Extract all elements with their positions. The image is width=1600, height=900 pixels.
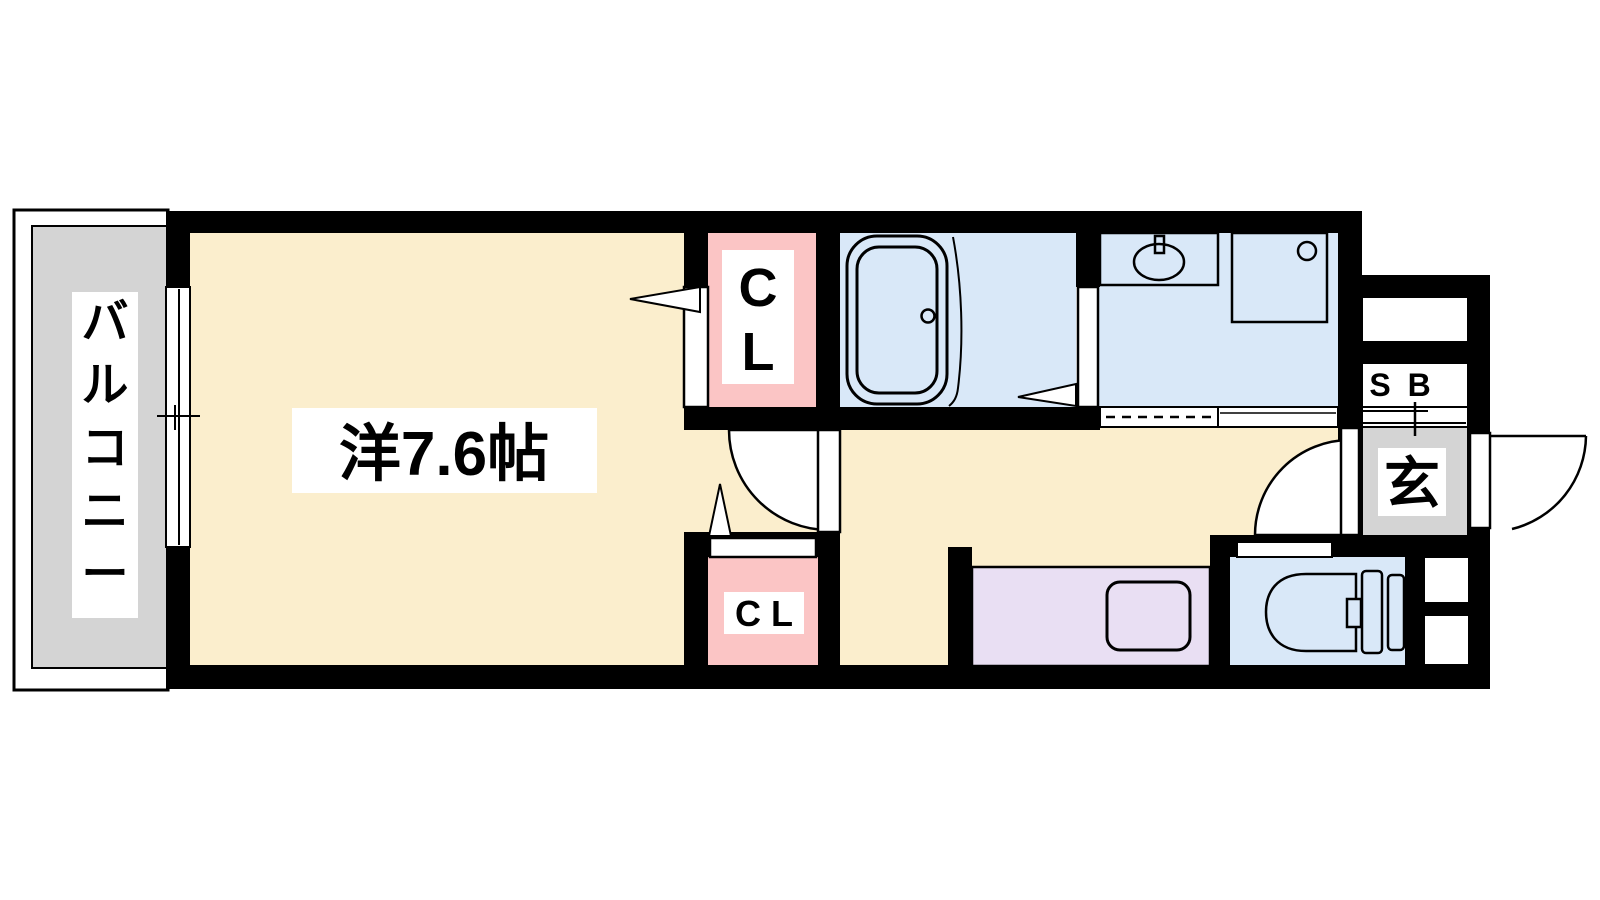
wall-bath-washroom-divider (1076, 233, 1100, 287)
wall-top (166, 211, 1362, 233)
room-door-leaf (818, 430, 840, 532)
toilet-seat-hinge (1347, 599, 1361, 627)
entrance-inner-door-leaf (1341, 428, 1359, 535)
kitchen (972, 567, 1210, 666)
balcony-label: バルコニー (82, 295, 129, 600)
bathroom-door-leaf (1078, 287, 1098, 407)
wall-under-closet-bath (684, 407, 1100, 430)
pipe-space-niche-1 (1425, 558, 1468, 602)
toilet-doorway-gap (1237, 542, 1332, 557)
wall-bottom (166, 665, 1490, 689)
entrance-label: 玄 (1384, 452, 1440, 515)
shoe-box-label: S B (1369, 367, 1434, 403)
closet-lower-door-band (710, 538, 816, 557)
wall-toilet-left (1210, 557, 1230, 665)
wall-closet-upper-left (684, 233, 708, 287)
wall-left-lower (166, 547, 190, 665)
western-room-label: 洋7.6帖 (339, 420, 549, 489)
sliding-door-band (1218, 407, 1338, 427)
wall-closet-bath-divider (816, 233, 840, 430)
wall-shoebox-divider (1362, 342, 1468, 363)
front-door-leaf (1470, 433, 1490, 528)
wall-left-upper (166, 233, 190, 287)
pipe-space-niche-2 (1425, 616, 1468, 664)
floorplan-page: バルコニー 洋7.6帖 CL C L S B 玄 (0, 0, 1600, 900)
meter-box-niche (1362, 297, 1468, 342)
wall-step-top-right (1338, 275, 1490, 297)
washroom-entry-doors (1100, 407, 1338, 427)
floorplan-canvas: バルコニー 洋7.6帖 CL C L S B 玄 (0, 0, 1600, 900)
closet-lower-label: C L (735, 593, 793, 634)
